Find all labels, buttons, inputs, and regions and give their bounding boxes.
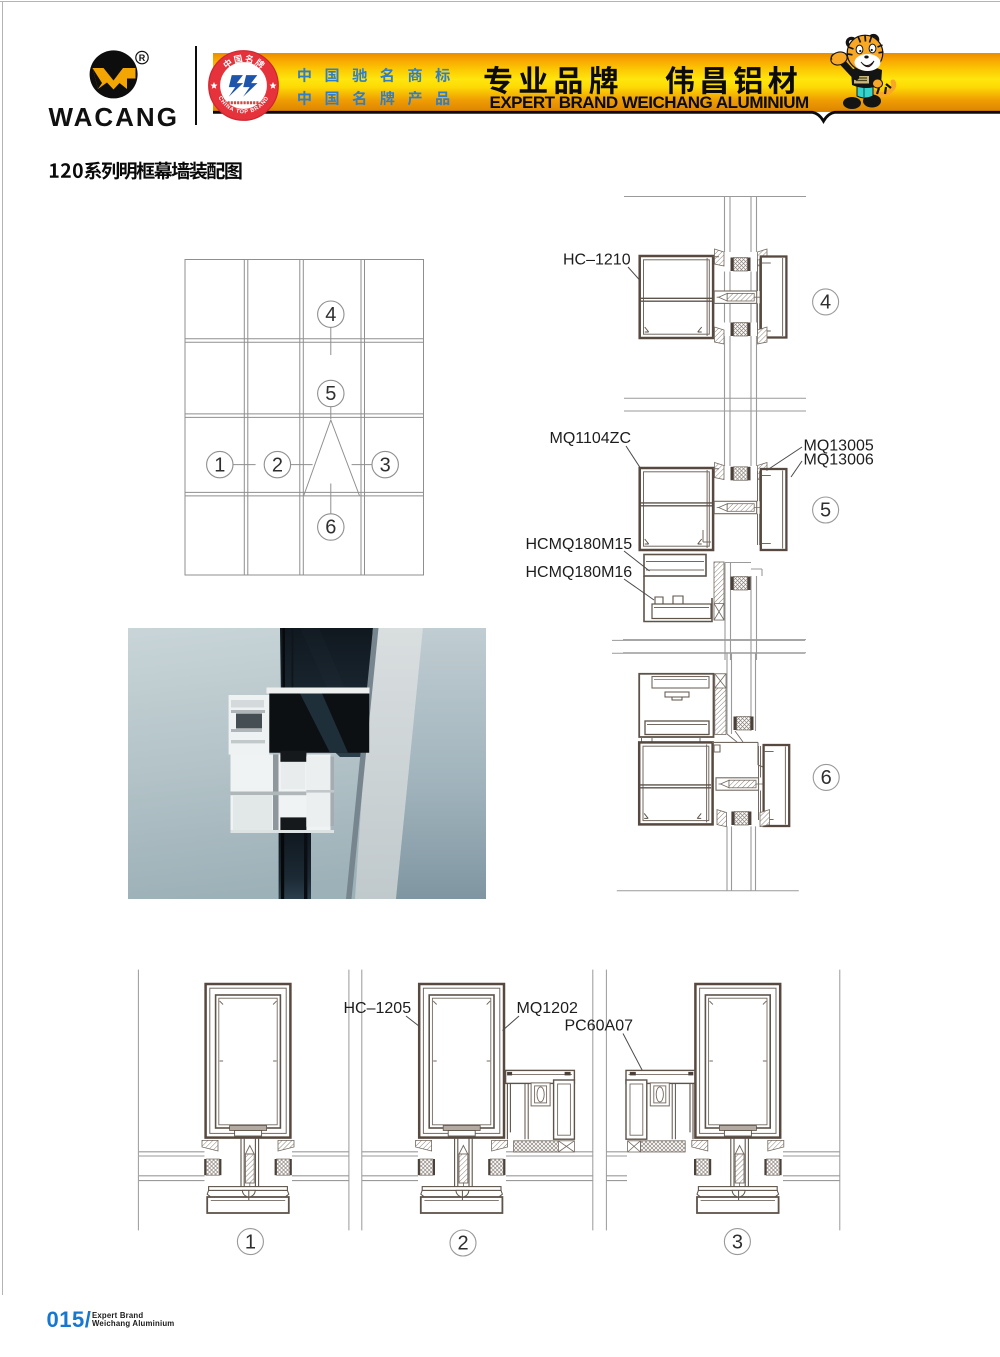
svg-text:PC60A07: PC60A07	[565, 1018, 634, 1035]
svg-text:5: 5	[820, 500, 831, 522]
svg-text:3: 3	[380, 454, 391, 476]
svg-text:5: 5	[325, 383, 336, 405]
svg-text:HCMQ180M16: HCMQ180M16	[526, 564, 633, 581]
svg-text:HC–1205: HC–1205	[344, 1000, 412, 1017]
svg-text:MQ1202: MQ1202	[517, 1000, 578, 1017]
svg-text:1: 1	[245, 1231, 256, 1253]
svg-text:MQ13006: MQ13006	[804, 452, 874, 469]
svg-text:3: 3	[732, 1231, 743, 1253]
svg-text:4: 4	[820, 292, 831, 314]
svg-text:2: 2	[272, 454, 283, 476]
svg-text:6: 6	[325, 517, 336, 539]
svg-text:HCMQ180M15: HCMQ180M15	[526, 536, 633, 553]
svg-text:2: 2	[457, 1233, 468, 1255]
svg-text:6: 6	[821, 767, 832, 789]
svg-text:4: 4	[325, 304, 336, 326]
svg-text:1: 1	[214, 454, 225, 476]
svg-text:MQ1104ZC: MQ1104ZC	[550, 430, 632, 447]
svg-text:HC–1210: HC–1210	[563, 252, 631, 269]
